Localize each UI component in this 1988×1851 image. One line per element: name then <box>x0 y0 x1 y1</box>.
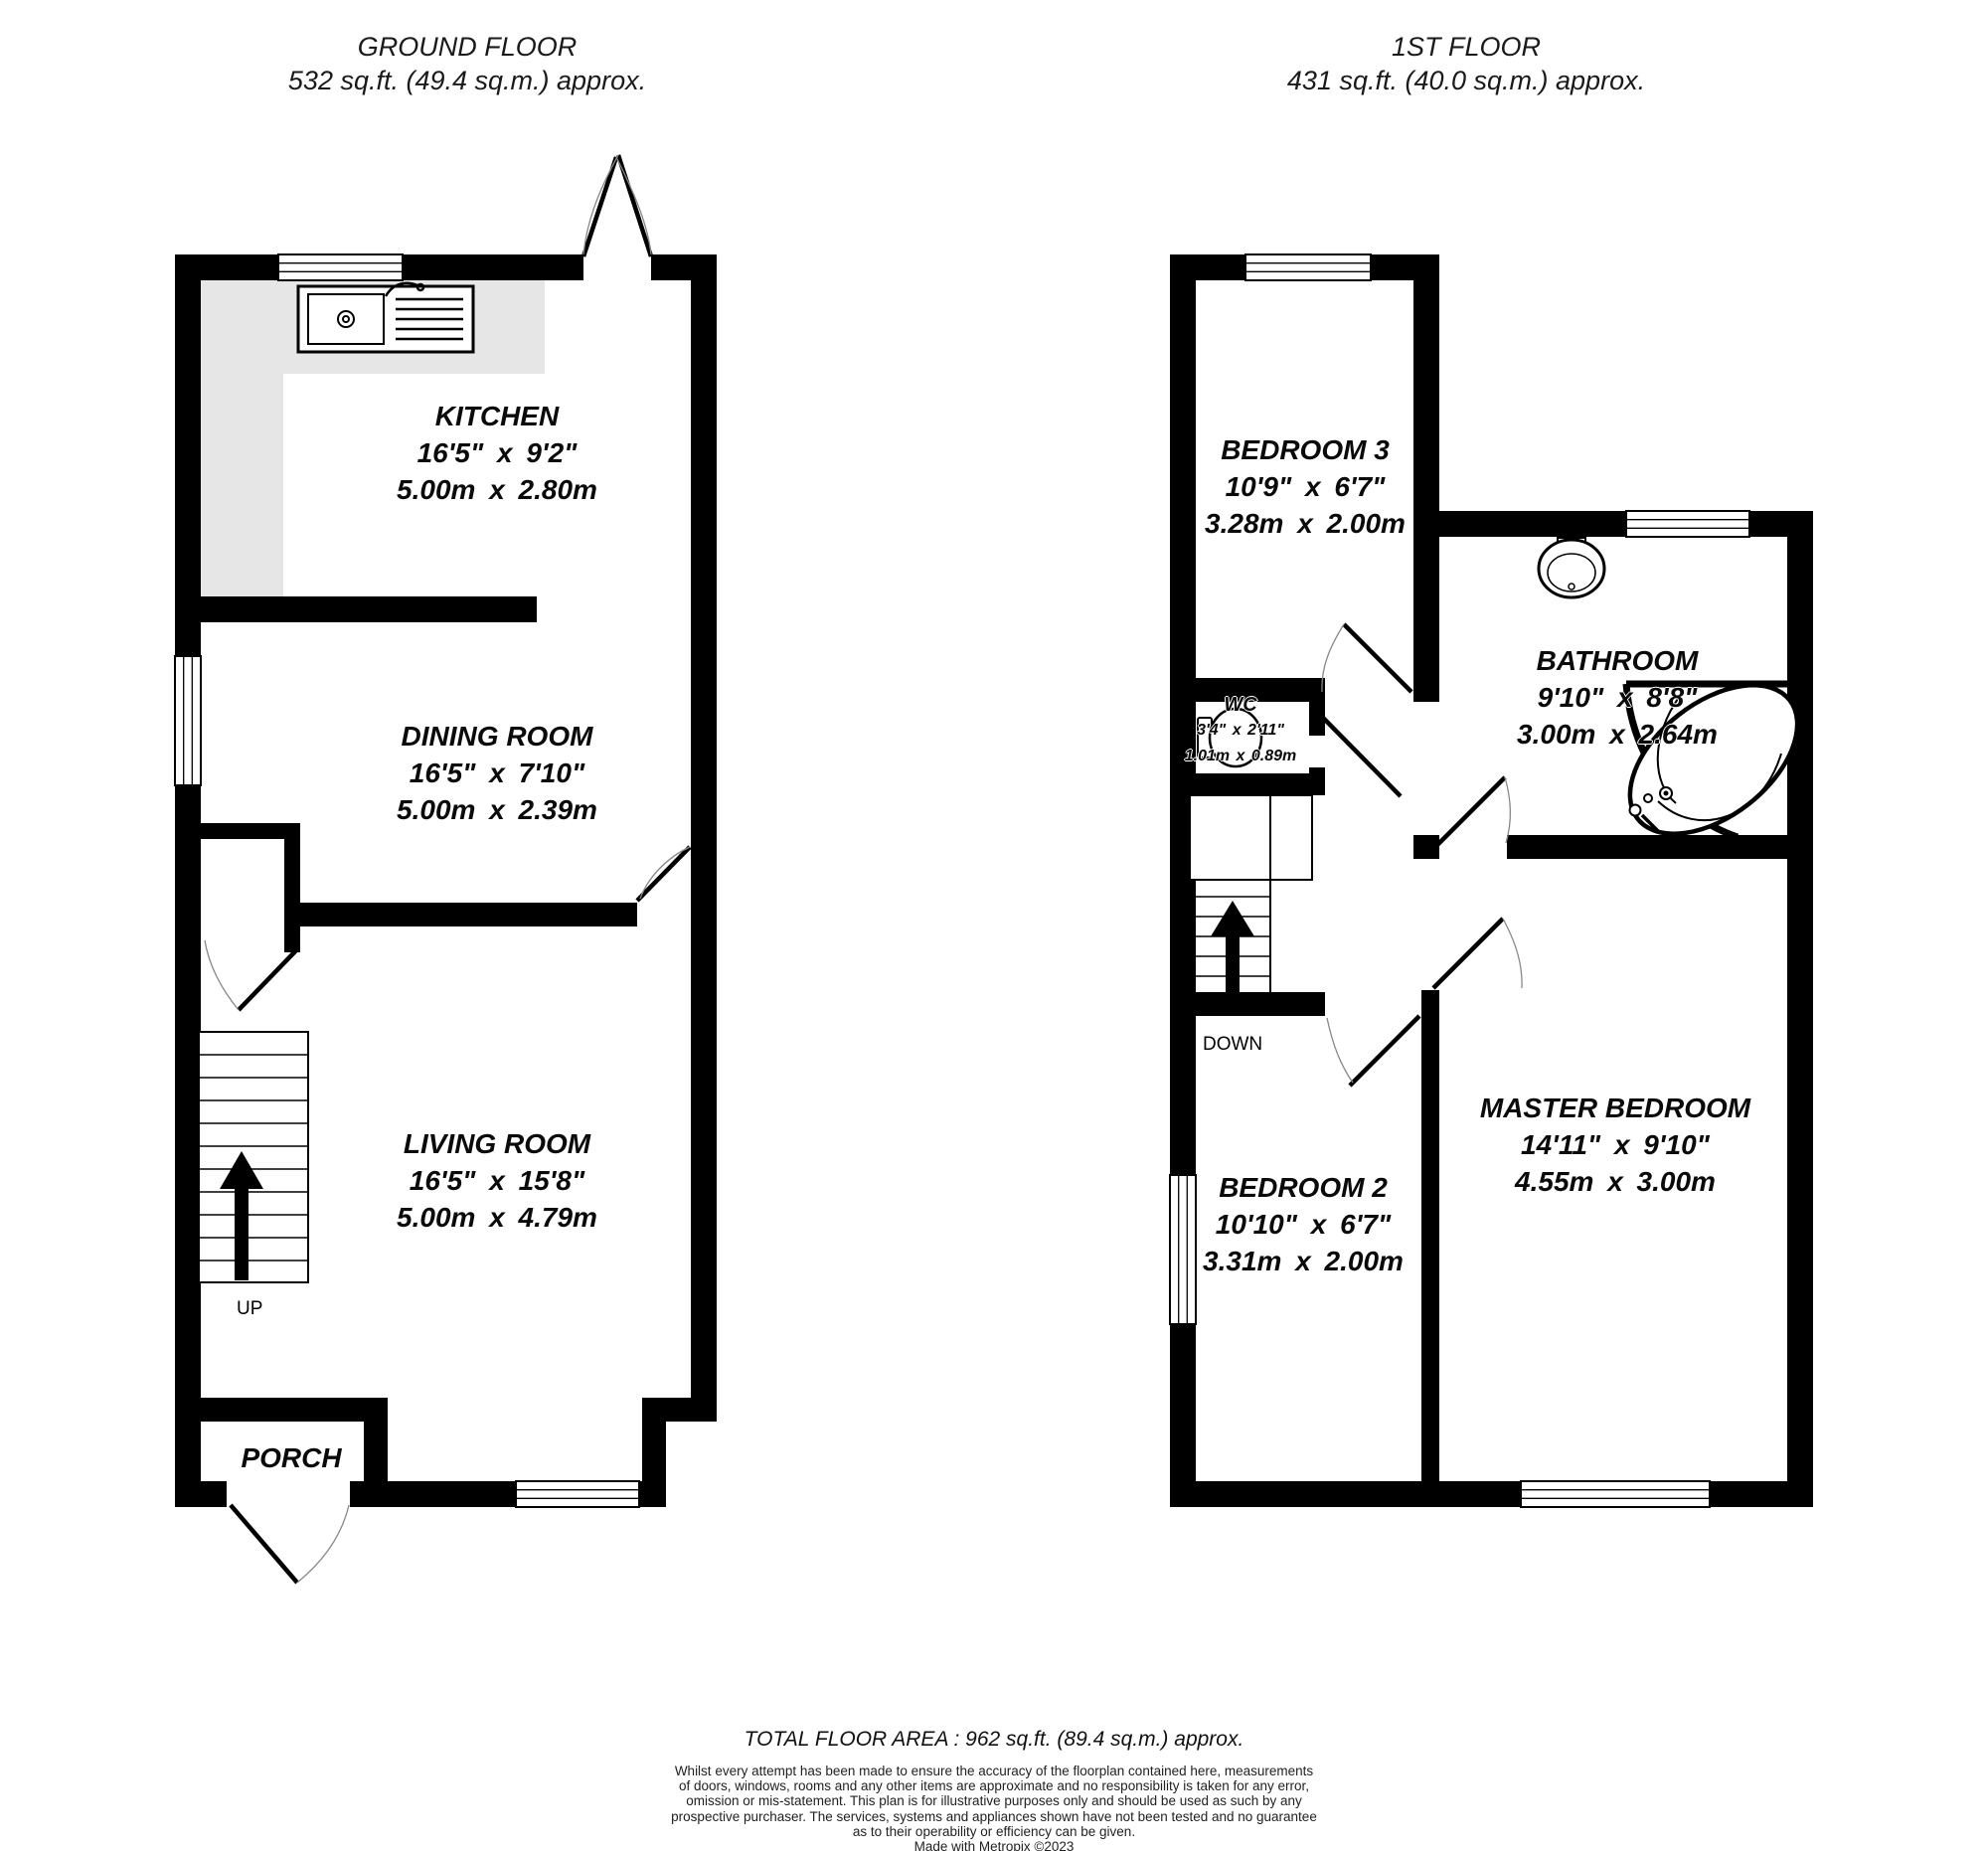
ground-floor-title: GROUND FLOOR <box>169 30 765 64</box>
first-floor-title: 1ST FLOOR <box>1168 30 1764 64</box>
bedroom2-label: BEDROOM 2 10'10" x 6'7" 3.31m x 2.00m <box>1154 1169 1452 1279</box>
room-size-imperial: 16'5" x 9'2" <box>348 434 646 471</box>
room-size-imperial: 16'5" x 15'8" <box>348 1162 646 1199</box>
porch-label: PORCH <box>192 1439 391 1476</box>
footer: TOTAL FLOOR AREA : 962 sq.ft. (89.4 sq.m… <box>497 1728 1491 1851</box>
room-size-metric: 5.00m x 4.79m <box>348 1199 646 1236</box>
living-room-label: LIVING ROOM 16'5" x 15'8" 5.00m x 4.79m <box>348 1125 646 1236</box>
room-size-metric: 3.28m x 2.00m <box>1156 505 1454 542</box>
first-floor-header: 1ST FLOOR 431 sq.ft. (40.0 sq.m.) approx… <box>1168 30 1764 97</box>
room-size-imperial: 10'9" x 6'7" <box>1156 468 1454 505</box>
first-floor-area: 431 sq.ft. (40.0 sq.m.) approx. <box>1168 64 1764 97</box>
room-size-metric: 4.55m x 3.00m <box>1416 1163 1814 1200</box>
kitchen-label: KITCHEN 16'5" x 9'2" 5.00m x 2.80m <box>348 398 646 508</box>
staircase-down <box>1190 795 1312 992</box>
down-arrow-icon <box>1211 901 1254 992</box>
disclaimer-line: Whilst every attempt has been made to en… <box>497 1764 1491 1778</box>
disclaimer-line: of doors, windows, rooms and any other i… <box>497 1778 1491 1793</box>
room-size-imperial: 3'4" x 2'11" <box>1141 718 1340 744</box>
room-size-imperial: 10'10" x 6'7" <box>1154 1206 1452 1243</box>
window <box>1245 254 1371 280</box>
room-name: WC <box>1141 692 1340 718</box>
room-size-metric: 5.00m x 2.39m <box>348 791 646 828</box>
room-name: KITCHEN <box>348 398 646 434</box>
window <box>516 1481 639 1507</box>
room-size-metric: 3.31m x 2.00m <box>1154 1243 1452 1279</box>
front-door <box>231 1505 349 1583</box>
room-name: DINING ROOM <box>348 718 646 755</box>
room-name: BATHROOM <box>1468 642 1766 679</box>
room-size-imperial: 9'10" x 8'8" <box>1468 679 1766 716</box>
bathroom-door <box>1437 777 1510 845</box>
room-size-imperial: 14'11" x 9'10" <box>1416 1126 1814 1163</box>
room-size-metric: 5.00m x 2.80m <box>348 471 646 508</box>
window <box>1521 1481 1710 1507</box>
room-size-metric: 3.00m x 2.64m <box>1468 716 1766 753</box>
stairs-up-label: UP <box>237 1298 296 1320</box>
window <box>278 254 403 280</box>
bedroom3-label: BEDROOM 3 10'9" x 6'7" 3.28m x 2.00m <box>1156 431 1454 542</box>
room-name: BEDROOM 3 <box>1156 431 1454 468</box>
window <box>1626 511 1749 537</box>
bathroom-sink-icon <box>1539 538 1604 597</box>
window <box>175 656 201 785</box>
french-doors <box>583 155 651 256</box>
stairs-down-label: DOWN <box>1203 1034 1292 1056</box>
disclaimer-line: as to their operability or efficiency ca… <box>497 1824 1491 1839</box>
room-name: BEDROOM 2 <box>1154 1169 1452 1206</box>
master-bedroom-door <box>1433 919 1522 988</box>
bedroom2-door <box>1327 1016 1419 1086</box>
staircase-up <box>199 1032 308 1282</box>
floorplan-page: GROUND FLOOR 532 sq.ft. (49.4 sq.m.) app… <box>0 0 1988 1851</box>
room-name: MASTER BEDROOM <box>1416 1090 1814 1126</box>
room-name: PORCH <box>192 1439 391 1476</box>
disclaimer-line: omission or mis-statement. This plan is … <box>497 1793 1491 1808</box>
hall-door <box>205 940 296 1010</box>
ground-floor-header: GROUND FLOOR 532 sq.ft. (49.4 sq.m.) app… <box>169 30 765 97</box>
dining-room-door <box>637 847 690 901</box>
master-bedroom-label: MASTER BEDROOM 14'11" x 9'10" 4.55m x 3.… <box>1416 1090 1814 1200</box>
floorplan-drawing <box>0 0 1988 1851</box>
room-name: LIVING ROOM <box>348 1125 646 1162</box>
dining-room-label: DINING ROOM 16'5" x 7'10" 5.00m x 2.39m <box>348 718 646 828</box>
ground-floor-area: 532 sq.ft. (49.4 sq.m.) approx. <box>169 64 765 97</box>
kitchen-sink-icon <box>298 283 473 352</box>
metropix-credit: Made with Metropix ©2023 <box>497 1839 1491 1851</box>
disclaimer-line: prospective purchaser. The services, sys… <box>497 1809 1491 1824</box>
wc-label: WC 3'4" x 2'11" 1.01m x 0.89m <box>1141 692 1340 769</box>
bathroom-label: BATHROOM 9'10" x 8'8" 3.00m x 2.64m <box>1468 642 1766 753</box>
total-floor-area: TOTAL FLOOR AREA : 962 sq.ft. (89.4 sq.m… <box>497 1728 1491 1752</box>
ground-floor-plan <box>175 155 717 1583</box>
room-size-metric: 1.01m x 0.89m <box>1141 744 1340 769</box>
bedroom3-door <box>1322 624 1411 692</box>
room-size-imperial: 16'5" x 7'10" <box>348 755 646 791</box>
